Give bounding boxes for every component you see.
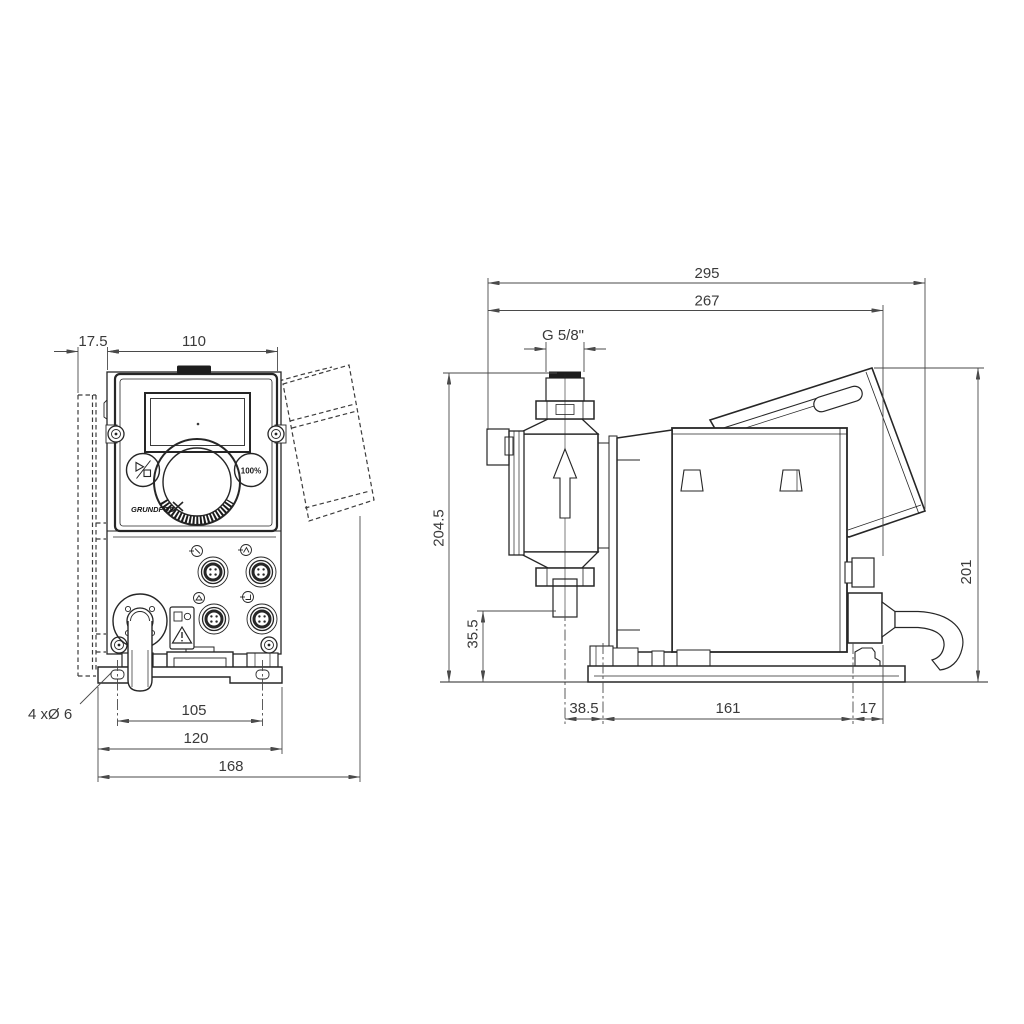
bottom-fitting bbox=[517, 552, 598, 617]
dim-height-over-base: 201 bbox=[874, 368, 984, 682]
dim-label: 120 bbox=[183, 730, 208, 747]
dim-label: 17 bbox=[860, 700, 877, 717]
motor-housing bbox=[672, 428, 847, 652]
warning-label bbox=[170, 607, 194, 649]
dim-label: 267 bbox=[694, 293, 719, 310]
dimensional-drawing-page: 100% GRUNDFOS bbox=[0, 0, 1024, 1024]
screw-icon bbox=[108, 426, 124, 442]
control-panel: 100% GRUNDFOS bbox=[115, 366, 277, 532]
base-plate-side bbox=[588, 666, 905, 682]
thread-size-label: G 5/8" bbox=[542, 327, 584, 344]
dim-label: 17.5 bbox=[78, 333, 107, 350]
display-cursor-dot bbox=[197, 423, 200, 426]
dim-label: 38.5 bbox=[569, 700, 598, 717]
cable-tube bbox=[128, 621, 152, 691]
dosing-head bbox=[487, 372, 609, 618]
screw-icon bbox=[268, 426, 284, 442]
dim-label: 168 bbox=[218, 758, 243, 775]
dim-connection-thread: G 5/8" bbox=[524, 327, 606, 372]
front-view: 100% GRUNDFOS bbox=[28, 333, 374, 782]
dim-label: 110 bbox=[182, 333, 206, 350]
hole-note-label: 4 xØ 6 bbox=[28, 706, 72, 723]
dim-label: 204.5 bbox=[431, 509, 448, 547]
dim-label: 201 bbox=[958, 559, 975, 584]
dim-label: 35.5 bbox=[465, 619, 482, 648]
clip bbox=[681, 470, 703, 491]
top-tab bbox=[177, 366, 211, 375]
dimensional-drawing: 100% GRUNDFOS bbox=[0, 0, 1024, 1024]
clip bbox=[780, 470, 802, 491]
dim-label: 295 bbox=[694, 265, 719, 282]
side-view: 295 267 G 5/8" 204.5 3 bbox=[431, 265, 989, 724]
brand-text: GRUNDFOS bbox=[131, 505, 174, 514]
wall-bracket-hidden-outline bbox=[78, 395, 106, 676]
base-plate-front bbox=[98, 667, 282, 683]
dim-connection-clearance: 35.5 bbox=[465, 611, 557, 682]
display bbox=[145, 393, 250, 452]
hood-hidden-outline bbox=[279, 365, 374, 521]
dim-label: 161 bbox=[715, 700, 740, 717]
dim-label: 105 bbox=[181, 702, 206, 719]
mains-cable bbox=[895, 612, 963, 671]
screw-icon bbox=[111, 637, 127, 653]
dim-panel-width: 110 bbox=[108, 333, 278, 371]
hundred-percent-label: 100% bbox=[241, 466, 261, 475]
screw-icon bbox=[261, 637, 277, 653]
front-bezel-side bbox=[609, 430, 672, 652]
